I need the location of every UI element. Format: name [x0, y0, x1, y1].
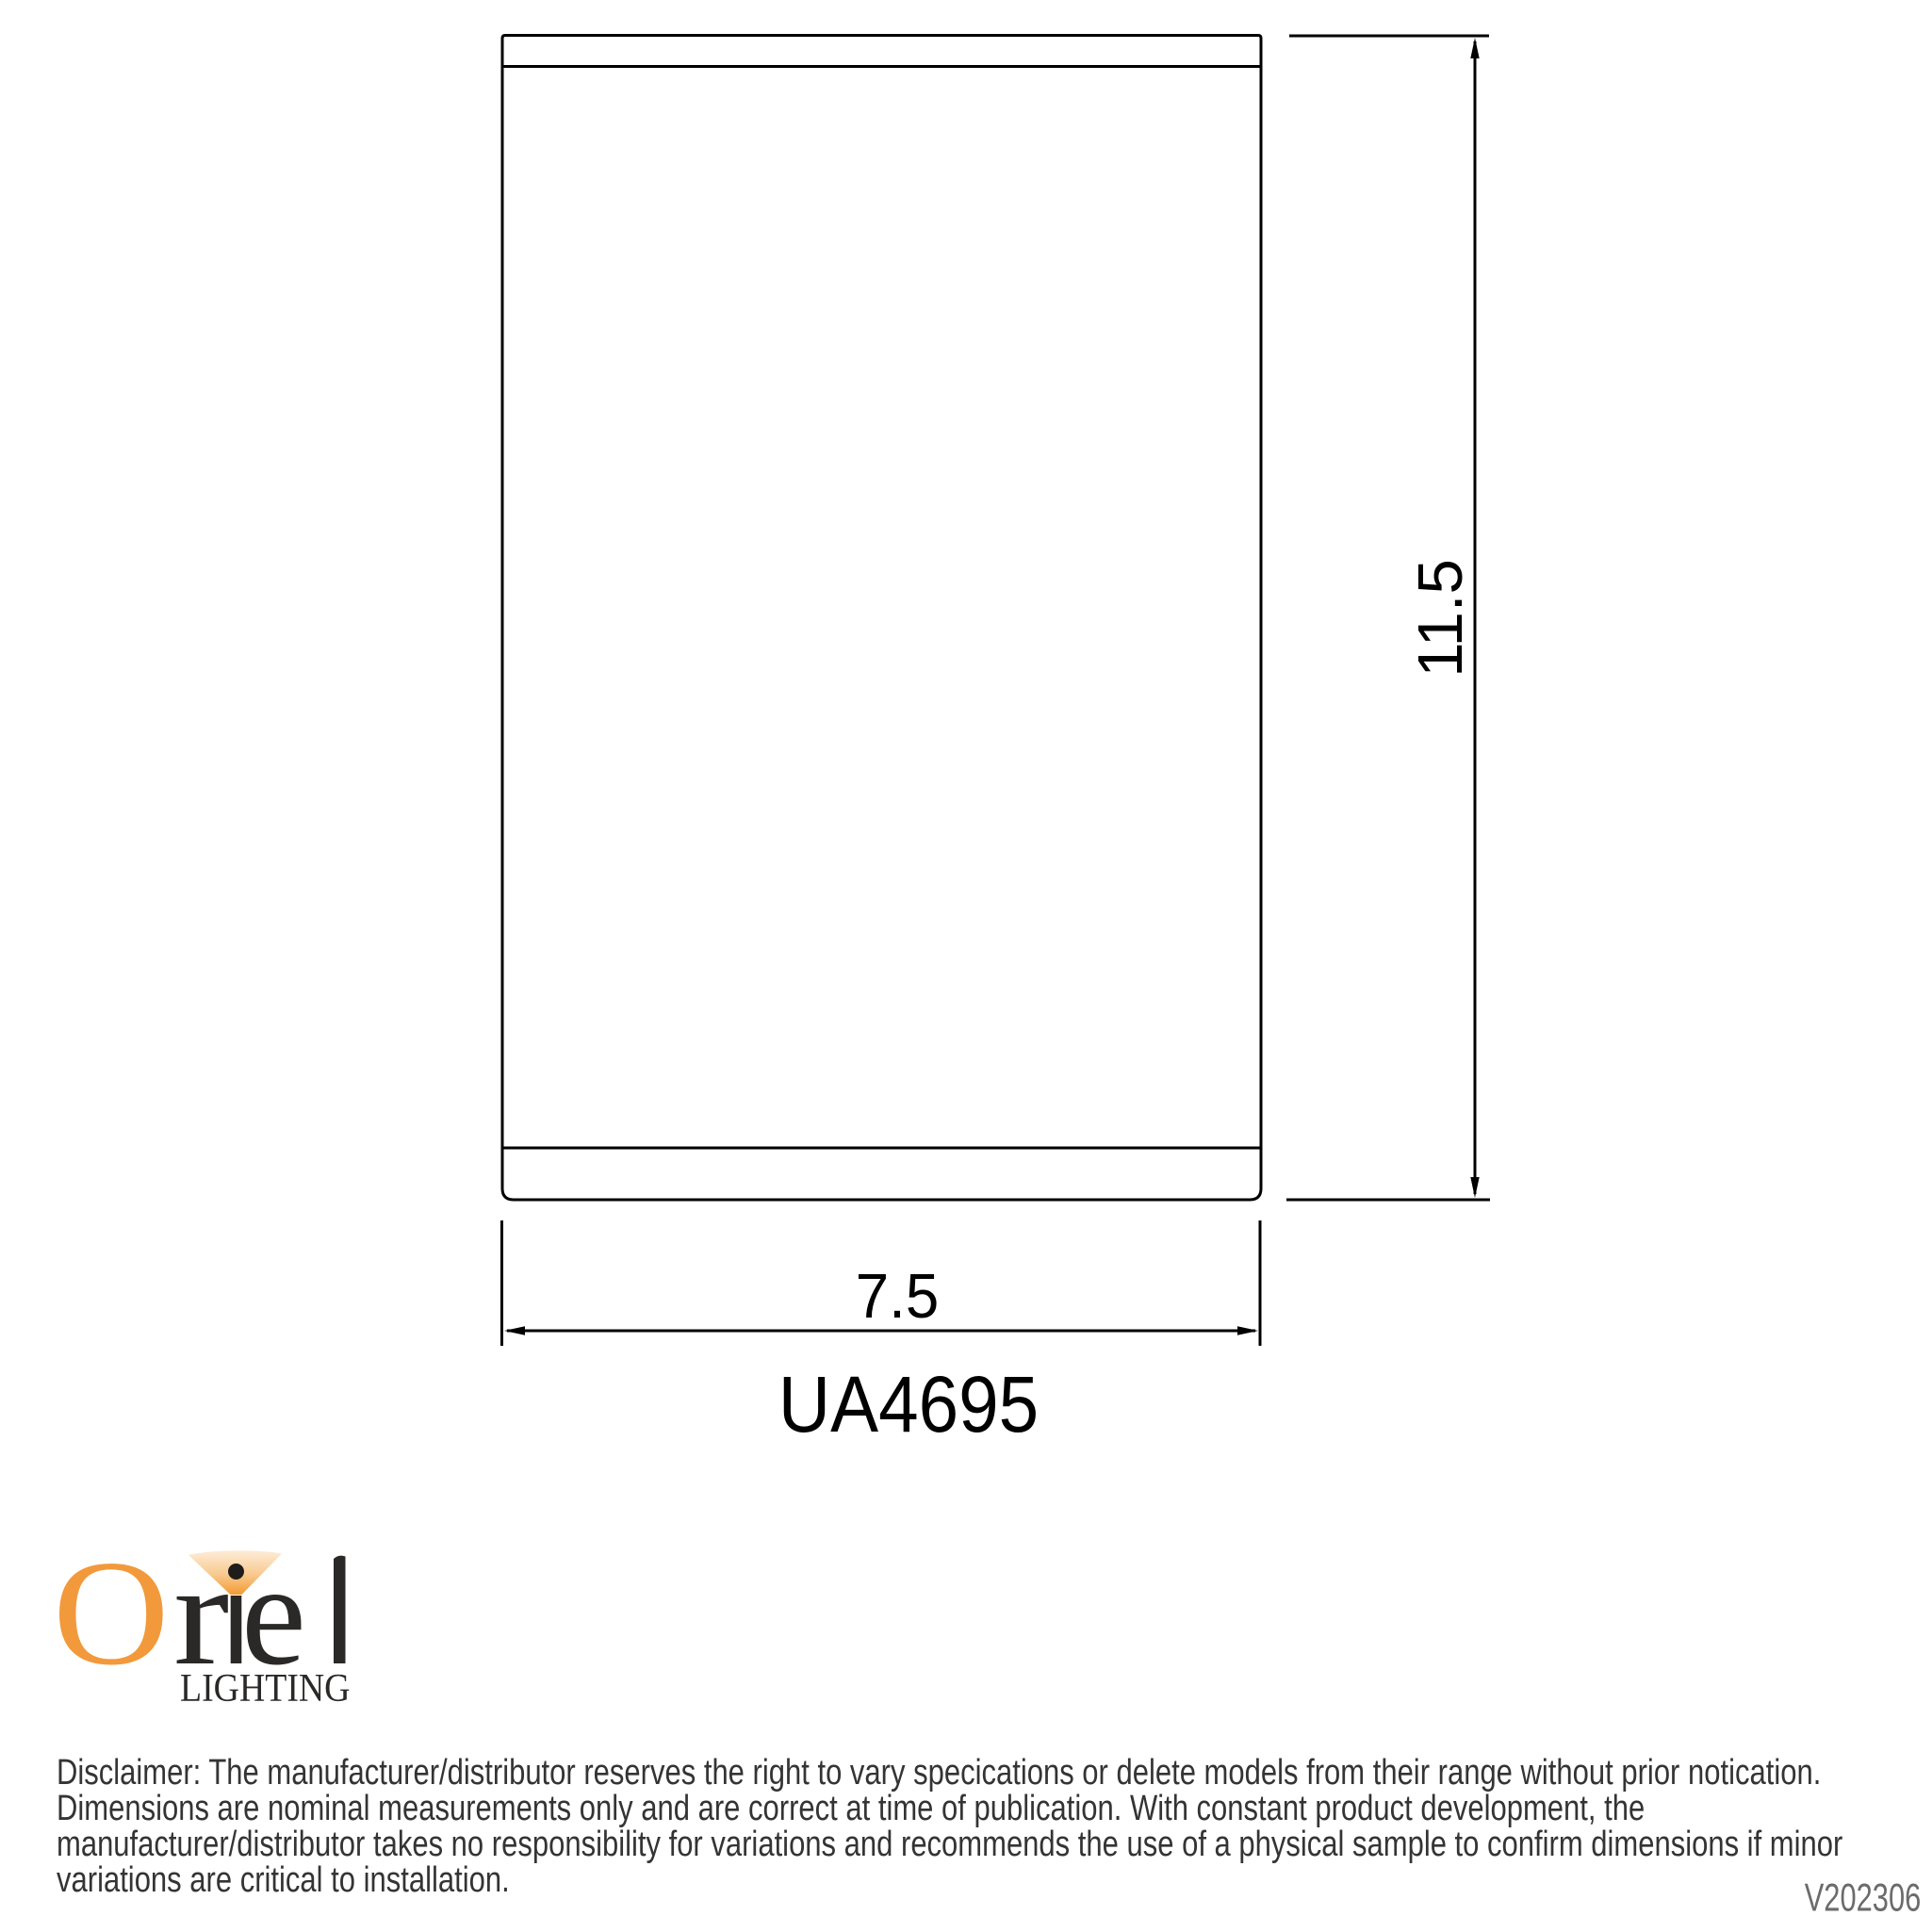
svg-text:UA4695: UA4695 — [778, 1361, 1039, 1449]
svg-text:7.5: 7.5 — [856, 1261, 939, 1332]
svg-text:V202306: V202306 — [1805, 1875, 1922, 1920]
svg-text:manufacturer/distributor takes: manufacturer/distributor takes no respon… — [57, 1825, 1842, 1864]
svg-text:O: O — [53, 1529, 170, 1696]
svg-text:variations are critical to ins: variations are critical to installation. — [57, 1860, 510, 1900]
svg-text:11.5: 11.5 — [1405, 559, 1476, 677]
svg-text:LIGHTING: LIGHTING — [180, 1665, 350, 1710]
svg-text:Disclaimer: The manufacturer/d: Disclaimer: The manufacturer/distributor… — [57, 1753, 1821, 1793]
svg-text:Dimensions are nominal measure: Dimensions are nominal measurements only… — [57, 1789, 1645, 1828]
